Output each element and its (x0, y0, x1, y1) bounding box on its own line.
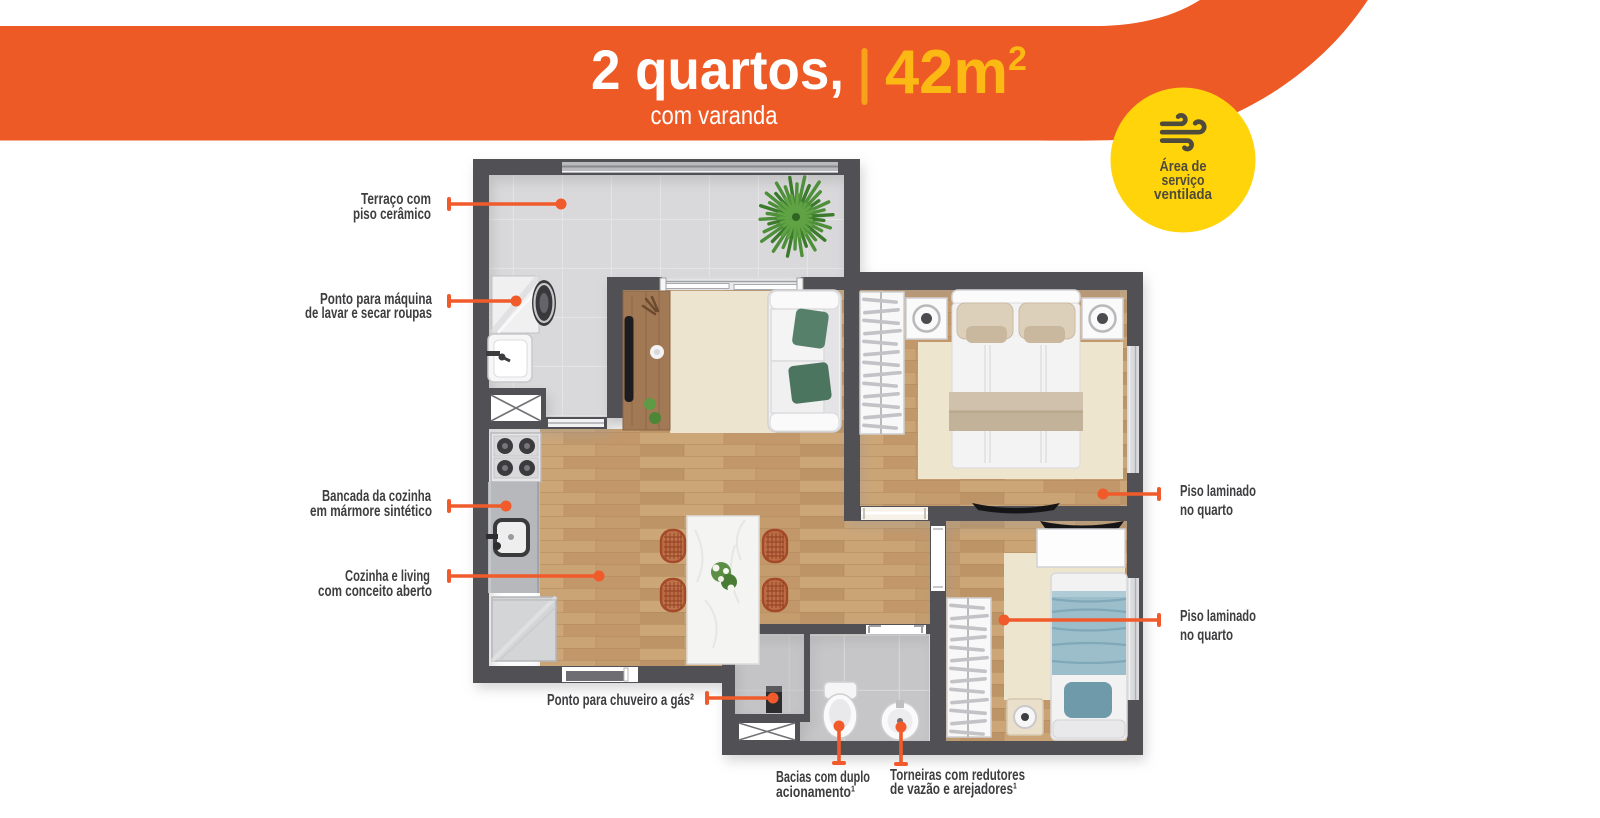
svg-text:2: 2 (1008, 40, 1027, 78)
svg-text:em mármore sintético: em mármore sintético (310, 503, 432, 520)
svg-text:2 quartos,: 2 quartos, (591, 38, 844, 101)
svg-text:de lavar e secar roupas: de lavar e secar roupas (305, 305, 432, 322)
svg-text:42m: 42m (885, 38, 1008, 107)
svg-text:com conceito aberto: com conceito aberto (318, 583, 432, 600)
svg-text:ventilada: ventilada (1154, 186, 1213, 203)
svg-text:Piso laminado: Piso laminado (1180, 608, 1256, 625)
svg-text:no quarto: no quarto (1180, 627, 1233, 644)
svg-text:piso cerâmico: piso cerâmico (353, 206, 431, 223)
svg-text:de vazão e arejadores¹: de vazão e arejadores¹ (890, 781, 1017, 798)
svg-text:com varanda: com varanda (651, 100, 778, 130)
svg-text:Piso laminado: Piso laminado (1180, 483, 1256, 500)
svg-text:acionamento¹: acionamento¹ (776, 784, 855, 801)
svg-text:no quarto: no quarto (1180, 502, 1233, 519)
svg-text:Ponto para chuveiro a gás²: Ponto para chuveiro a gás² (547, 692, 694, 709)
